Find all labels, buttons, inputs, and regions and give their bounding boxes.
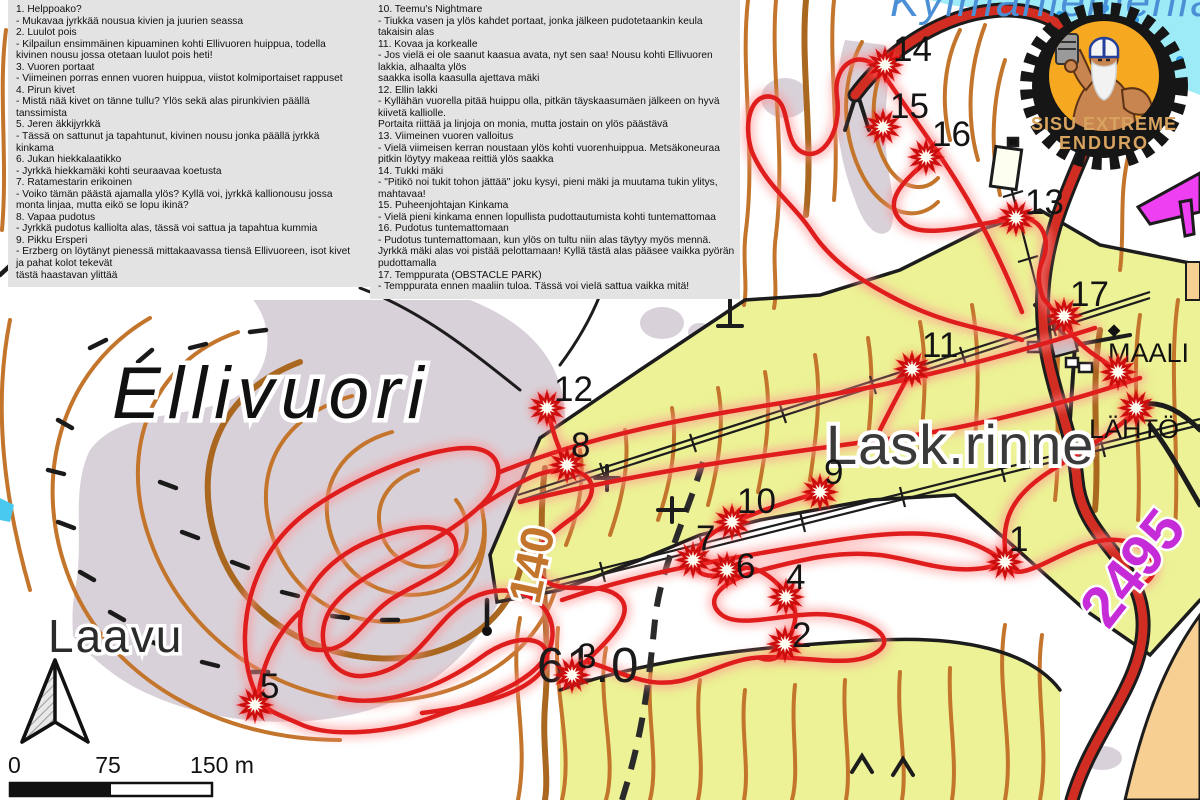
stage-description-line: mahtavaa! [378,189,732,201]
stage-description-line: takaisin alas [378,27,732,39]
stage-description-line: - Jyrkkä hiekkamäki kohti seuraavaa koet… [16,166,362,178]
checkpoint-number: 13 [1025,183,1064,222]
stage-description-line: - "Pitikö noi tukit tohon jättää" joku k… [378,177,732,189]
checkpoint-number: 16 [932,115,971,154]
stage-description-line: 10. Teemu's Nightmare [378,4,732,16]
stage-description-line: 3. Vuoren portaat [16,62,362,74]
stage-description-line: tästä haastavan ylittää [16,270,362,282]
stage-description-line: - Vielä pieni kinkama ennen lopullista p… [378,212,732,224]
stage-description-line: pudottamalla [378,258,732,270]
stage-description-line: 15. Puheenjohtajan Kinkama [378,200,732,212]
scale-mid: 75 [95,752,121,778]
stage-description-line: 12. Ellin lakki [378,85,732,97]
stage-description-line: - Jyrkkä pudotus kalliolta alas, tässä v… [16,223,362,235]
stage-description-line: kiivetä kalliolle. [378,108,732,120]
stage-description-line: kinkama [16,143,362,155]
checkpoint-number: 14 [893,30,932,69]
stage-description-line: 8. Vapaa pudotus [16,212,362,224]
checkpoint-number: 8 [571,426,590,465]
stage-description-line: - Mukavaa jyrkkää nousua kivien ja juuri… [16,16,362,28]
checkpoint-number: 7 [696,519,715,558]
stage-description-line: lakkia, alhaalta ylös [378,62,732,74]
stage-description-line: 11. Kovaa ja korkealle [378,39,732,51]
slope-name-label: Lask.rinne [826,413,1094,476]
checkpoint-number: 17 [1070,275,1109,314]
checkpoint-number: 6 [736,547,755,586]
stage-description-line: monta linjaa, mutta eikö se lopu ikinä? [16,200,362,212]
stage-description-line: kivinen nousu jossa otetaan luulot pois … [16,50,362,62]
checkpoint-number: 10 [737,482,776,521]
stage-description-line: 14. Tukki mäki [378,166,732,178]
stage-description-line: 17. Temppurata (OBSTACLE PARK) [378,270,732,282]
stage-description-line: - Erzberg on löytänyt pienessä mittakaav… [16,246,362,258]
stage-description-line: 4. Pirun kivet [16,85,362,97]
stage-description-line: - Voiko tämän päästä ajamalla ylös? Kyll… [16,189,362,201]
stage-description-line: - Tiukka vasen ja ylös kahdet portaat, j… [378,16,732,28]
event-logo: SISU EXTREME ENDURO [1027,9,1181,163]
scale-bar: 0 75 150 m [0,750,254,800]
stage-description-line: - Kilpailun ensimmäinen kipuaminen kohti… [16,39,362,51]
stage-descriptions-panel-right: 10. Teemu's Nightmare- Tiukka vasen ja y… [370,0,740,299]
checkpoint-number: 3 [577,637,596,676]
stage-description-line: - Mistä nää kivet on tänne tullu? Ylös s… [16,96,362,108]
stage-description-line: - Tässä on sattunut ja tapahtunut, kivin… [16,131,362,143]
checkpoint-number: 1 [1009,520,1028,559]
stage-description-line: Portaita riittää ja linjoja on monia, mu… [378,119,732,131]
logo-title-line1: SISU EXTREME [1031,114,1177,134]
shelter-label: Laavu [48,610,183,662]
stage-description-line: Jyrkkä mäki alas voi pistää pelottamaan!… [378,246,732,258]
stage-description-line: - Kyllähän vuorella pitää huippu olla, p… [378,96,732,108]
stage-description-line: 1. Helppoako? [16,4,362,16]
scale-zero: 0 [8,752,21,778]
checkpoint-number: 9 [824,453,843,492]
logo-title-line2: ENDURO [1059,133,1149,153]
checkpoint-number: 15 [890,87,929,126]
hill-name-label: Ellivuori [112,353,431,434]
stage-description-line: pitkin löytyy makeaa reittiä ylös saakka [378,154,732,166]
stage-description-line: 13. Viimeinen vuoren valloitus [378,131,732,143]
stage-description-line: tanssimista [16,108,362,120]
stage-description-line: saakka isolla kaasulla ajettava mäki [378,73,732,85]
stage-description-line: - Pudotus tuntemattomaan, kun ylös on tu… [378,235,732,247]
stage-description-line: - Vielä viimeisen kerran noustaan ylös k… [378,143,732,155]
stage-description-line: - Jos vielä ei ole saanut kaasua avata, … [378,50,732,62]
checkpoint-number: 4 [786,558,805,597]
stage-description-line: - Viimeinen porras ennen vuoren huippua,… [16,73,362,85]
stage-description-line: 7. Ratamestarin erikoinen [16,177,362,189]
checkpoint-number: 12 [554,370,593,409]
stage-description-line: 16. Pudotus tuntemattomaan [378,223,732,235]
stage-description-line: ja pahat kolot tekevät [16,258,362,270]
stage-description-line: - Temppurata ennen maaliin tuloa. Tässä … [378,281,732,293]
scale-end: 150 m [190,752,254,778]
checkpoint-number: 2 [792,616,811,655]
stage-description-line: 2. Luulot pois [16,27,362,39]
checkpoint-number: 5 [260,667,279,706]
checkpoint-number: 11 [922,326,958,365]
stage-description-line: 9. Pikku Ersperi [16,235,362,247]
stage-descriptions-panel-left: 1. Helppoako?- Mukavaa jyrkkää nousua ki… [8,0,370,287]
stage-description-line: 5. Jeren äkkijyrkkä [16,119,362,131]
stage-description-line: 6. Jukan hiekkalaatikko [16,154,362,166]
